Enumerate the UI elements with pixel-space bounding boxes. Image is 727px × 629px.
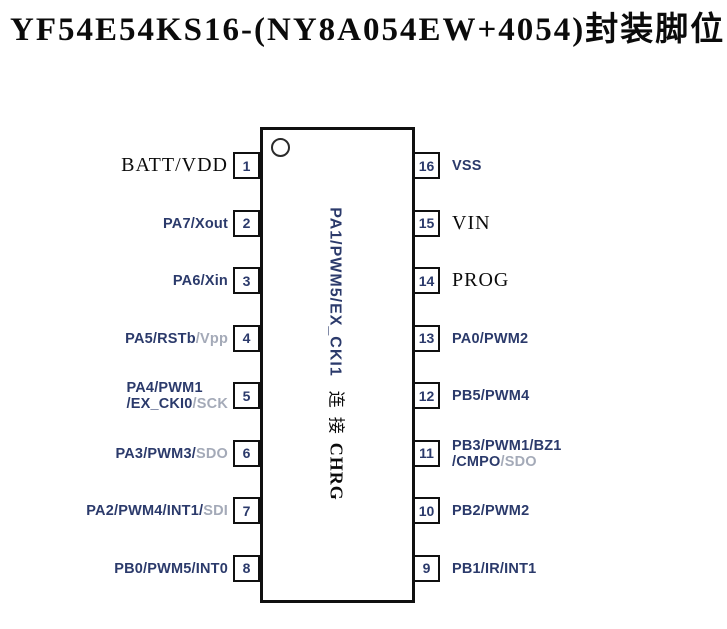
pin-label-line: /EX_CKI0/SCK	[126, 396, 228, 412]
pin-label-line: PA5/RSTb/Vpp	[125, 331, 228, 347]
pin-label: PB0/PWM5/INT0	[114, 545, 228, 593]
pin-number: 14	[419, 273, 435, 289]
pin-number: 3	[243, 273, 251, 289]
pin-number-box: 4	[233, 325, 260, 352]
pin-label: PA7/Xout	[163, 200, 228, 248]
pin-label: VSS	[452, 142, 482, 190]
pin-label-line: PA3/PWM3/SDO	[115, 446, 228, 462]
pin-label-segment: BATT/VDD	[121, 154, 228, 176]
pin-label-line: VIN	[452, 215, 491, 233]
pin-label-segment: PA5/RSTb	[125, 331, 196, 347]
pin-label-segment: PB0/PWM5/INT0	[114, 561, 228, 577]
pin-number-box: 9	[413, 555, 440, 582]
pin-label-segment: /SDO	[501, 454, 537, 470]
chip-inner-label-segment: 连接	[327, 391, 346, 443]
pin-number: 7	[243, 503, 251, 519]
pin-number: 6	[243, 445, 251, 461]
pin-number-box: 15	[413, 210, 440, 237]
pin-label-segment: PB5/PWM4	[452, 388, 529, 404]
pin-number-box: 2	[233, 210, 260, 237]
pin-label-line: PA7/Xout	[163, 216, 228, 232]
pin-label: PA6/Xin	[173, 257, 228, 305]
pin-number: 2	[243, 215, 251, 231]
pin-label: PB5/PWM4	[452, 372, 529, 420]
pin-label-segment: PA3/PWM3/	[115, 446, 196, 462]
pin-label: VIN	[452, 200, 491, 248]
pin-label-segment: /SCK	[193, 396, 228, 412]
pin-label-line: PB3/PWM1/BZ1	[452, 438, 562, 454]
pin-label-line: /CMPO/SDO	[452, 454, 537, 470]
pin-label-segment: PA0/PWM2	[452, 331, 528, 347]
pin-number-box: 7	[233, 497, 260, 524]
pin-label-line: PA2/PWM4/INT1/SDI	[86, 503, 228, 519]
pin-number: 4	[243, 330, 251, 346]
pin-label-line: PB2/PWM2	[452, 503, 529, 519]
pin-number: 1	[243, 158, 251, 174]
page-title: YF54E54KS16-(NY8A054EW+4054)封装脚位图	[10, 2, 727, 50]
pin-label-line: PB5/PWM4	[452, 388, 529, 404]
chip-inner-label-segment: CHRG	[327, 443, 347, 501]
pin1-dot-icon	[271, 138, 290, 157]
pin-label-line: VSS	[452, 158, 482, 174]
pin-number: 12	[419, 388, 435, 404]
pin-label: PROG	[452, 257, 509, 305]
pin-number-box: 12	[413, 382, 440, 409]
pin-label: BATT/VDD	[121, 142, 228, 190]
pin-label-segment: PROG	[452, 269, 509, 291]
pin-number: 16	[419, 158, 435, 174]
pin-label-segment: /EX_CKI0	[126, 396, 192, 412]
pin-label-segment: VSS	[452, 158, 482, 174]
pin-number-box: 11	[413, 440, 440, 467]
pin-label: PA5/RSTb/Vpp	[125, 315, 228, 363]
pin-number-box: 1	[233, 152, 260, 179]
pin-label-segment: PA4/PWM1	[126, 380, 202, 396]
pin-label-segment: SDO	[196, 446, 228, 462]
pin-number: 8	[243, 560, 251, 576]
pin-label-segment: SDI	[203, 503, 228, 519]
pin-number: 5	[243, 388, 251, 404]
pin-number-box: 10	[413, 497, 440, 524]
pin-number-box: 6	[233, 440, 260, 467]
pin-label: PA2/PWM4/INT1/SDI	[86, 487, 228, 535]
pin-label-line: PA0/PWM2	[452, 331, 528, 347]
pin-label: PA4/PWM1/EX_CKI0/SCK	[126, 372, 228, 420]
pin-number: 11	[419, 445, 434, 461]
pin-label: PA3/PWM3/SDO	[115, 430, 228, 478]
pin-label: PB3/PWM1/BZ1/CMPO/SDO	[452, 430, 562, 478]
pin-number: 10	[419, 503, 435, 519]
pin-number-box: 8	[233, 555, 260, 582]
pin-number-box: 16	[413, 152, 440, 179]
pinout-diagram: YF54E54KS16-(NY8A054EW+4054)封装脚位图 PA1/PW…	[0, 0, 727, 629]
chip-inner-label-segment: PA1/PWM5/EX_CKI1	[327, 207, 344, 377]
pin-number: 9	[423, 560, 431, 576]
pin-number: 13	[419, 330, 435, 346]
pin-label: PA0/PWM2	[452, 315, 528, 363]
pin-label-segment: PA7/Xout	[163, 216, 228, 232]
pin-label-segment: /Vpp	[196, 331, 228, 347]
pin-number-box: 14	[413, 267, 440, 294]
pin-number-box: 3	[233, 267, 260, 294]
pin-label-segment: /CMPO	[452, 454, 501, 470]
pin-number-box: 5	[233, 382, 260, 409]
pin-label-line: PA6/Xin	[173, 273, 228, 289]
pin-label-segment: VIN	[452, 212, 491, 234]
pin-label-segment: PB1/IR/INT1	[452, 561, 536, 577]
pin-label-line: PB1/IR/INT1	[452, 561, 536, 577]
pin-label: PB1/IR/INT1	[452, 545, 536, 593]
pin-label-line: PB0/PWM5/INT0	[114, 561, 228, 577]
pin-number-box: 13	[413, 325, 440, 352]
pin-label-line: PROG	[452, 272, 509, 290]
pin-label-segment: PB3/PWM1/BZ1	[452, 438, 562, 454]
pin-label-line: PA4/PWM1	[126, 380, 202, 396]
chip-inner-label: PA1/PWM5/EX_CKI1连接CHRG	[326, 207, 351, 501]
pin-label-line: BATT/VDD	[121, 157, 228, 175]
pin-label-segment: PA6/Xin	[173, 273, 228, 289]
pin-number: 15	[419, 215, 435, 231]
pin-label: PB2/PWM2	[452, 487, 529, 535]
pin-label-segment: PA2/PWM4/INT1/	[86, 503, 203, 519]
pin-label-segment: PB2/PWM2	[452, 503, 529, 519]
